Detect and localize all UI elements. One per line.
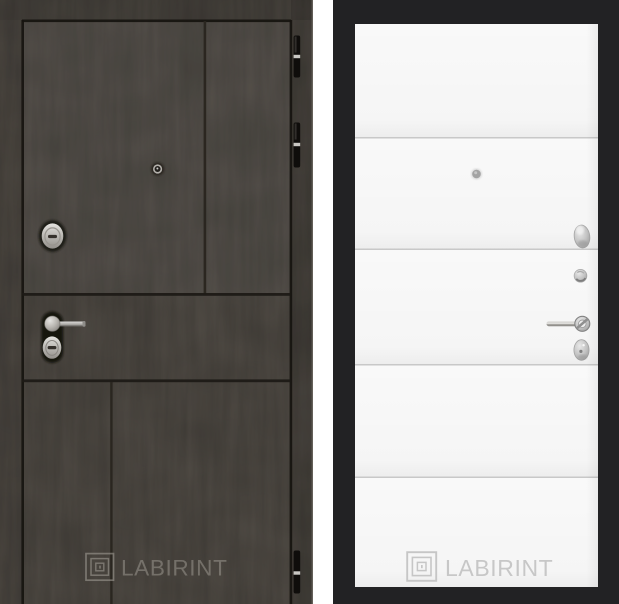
svg-text:LABIRINT: LABIRINT bbox=[121, 555, 228, 580]
svg-text:LABIRINT: LABIRINT bbox=[445, 555, 553, 581]
